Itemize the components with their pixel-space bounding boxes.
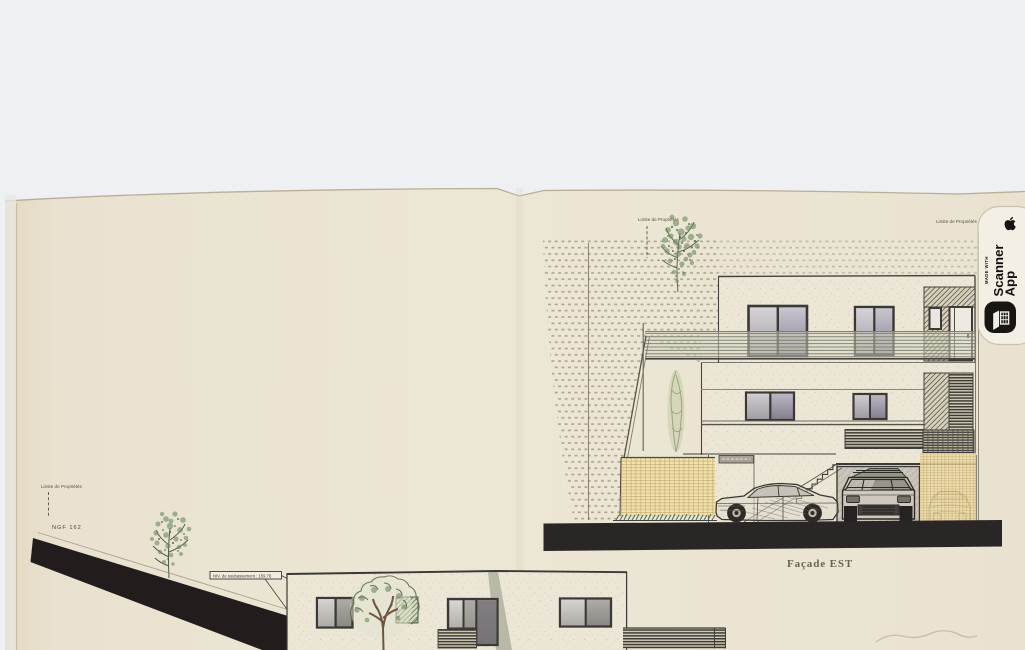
svg-text:Limite de Propriétés: Limite de Propriétés (41, 484, 83, 489)
svg-text:Façade EST: Façade EST (787, 558, 853, 570)
svg-text:App: App (1003, 271, 1018, 297)
svg-text:NIV. de soubassement : 159.76: NIV. de soubassement : 159.76 (213, 573, 272, 578)
svg-text:NGF 162: NGF 162 (52, 525, 82, 531)
svg-text:Limite de Propriétés: Limite de Propriétés (936, 219, 978, 224)
svg-text:MADE WITH: MADE WITH (984, 256, 989, 284)
